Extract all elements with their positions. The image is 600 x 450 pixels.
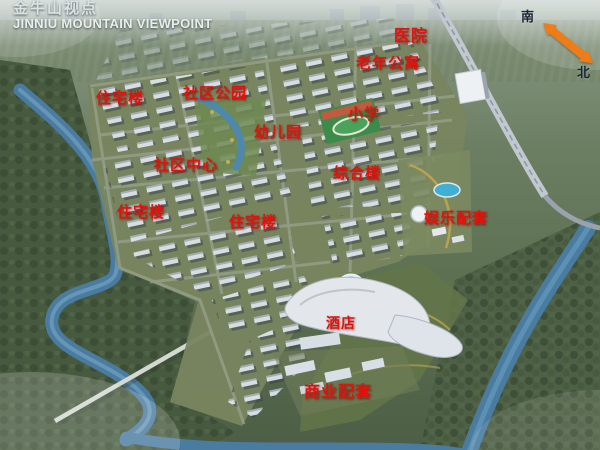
aerial-masterplan-view: 金牛山视点 JINNIU MOUNTAIN VIEWPOINT 医院老年公寓住宅… bbox=[0, 0, 600, 450]
compass: 南 北 bbox=[0, 0, 600, 450]
compass-arrow-icon bbox=[539, 18, 598, 69]
compass-south-label: 南 bbox=[521, 10, 534, 23]
compass-north-label: 北 bbox=[577, 66, 590, 79]
